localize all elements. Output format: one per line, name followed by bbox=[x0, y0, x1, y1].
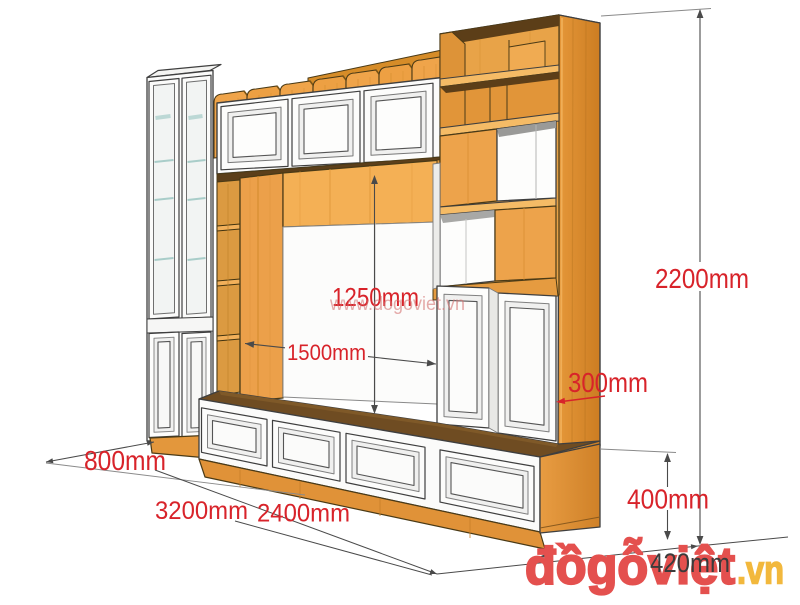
svg-text:2200mm: 2200mm bbox=[655, 263, 749, 294]
svg-text:400mm: 400mm bbox=[627, 484, 709, 515]
svg-text:300mm: 300mm bbox=[568, 367, 648, 398]
svg-text:1500mm: 1500mm bbox=[287, 340, 366, 365]
svg-text:www.dogoviet.vn: www.dogoviet.vn bbox=[329, 294, 465, 315]
svg-text:.vn: .vn bbox=[737, 549, 784, 593]
svg-text:3200mm: 3200mm bbox=[155, 497, 248, 525]
svg-text:420mm: 420mm bbox=[650, 548, 730, 578]
svg-text:800mm: 800mm bbox=[84, 445, 166, 476]
svg-text:2400mm: 2400mm bbox=[257, 500, 350, 528]
